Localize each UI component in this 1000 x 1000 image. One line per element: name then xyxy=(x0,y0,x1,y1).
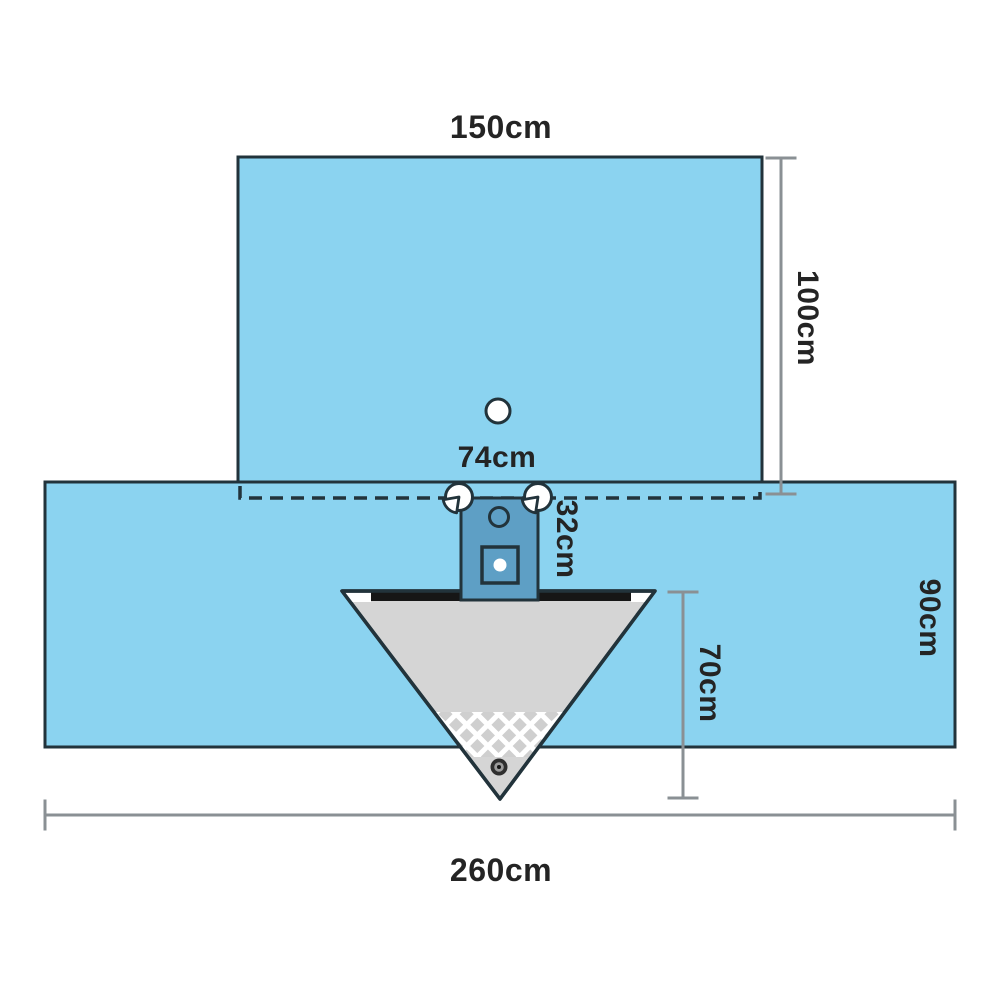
label-top-height: 100cm xyxy=(791,270,824,366)
label-top-width: 150cm xyxy=(450,109,552,145)
surgical-drape-diagram: 150cm 100cm 74cm 32cm 90cm 70cm 260cm xyxy=(0,0,1000,1000)
mesh-filter-band xyxy=(434,712,564,757)
tube-holder-left xyxy=(443,484,472,513)
drain-port-center xyxy=(497,765,501,769)
fenestration-hole xyxy=(486,399,510,423)
label-bottom-height: 90cm xyxy=(913,579,946,658)
label-fenestration-width: 74cm xyxy=(458,441,537,474)
instrument-pouch-window-dot xyxy=(494,559,507,572)
drape-diagram-canvas: 150cm 100cm 74cm 32cm 90cm 70cm 260cm xyxy=(0,0,1000,1000)
dimension-line-100cm xyxy=(767,158,795,494)
dimension-line-260cm xyxy=(45,801,955,829)
label-instrument-pouch-height: 32cm xyxy=(550,500,583,579)
label-bottom-width: 260cm xyxy=(450,852,552,888)
label-collection-pouch-depth: 70cm xyxy=(693,644,726,723)
tube-holder-right xyxy=(522,484,551,513)
instrument-pouch xyxy=(461,498,538,600)
top-drape-panel xyxy=(238,157,762,482)
